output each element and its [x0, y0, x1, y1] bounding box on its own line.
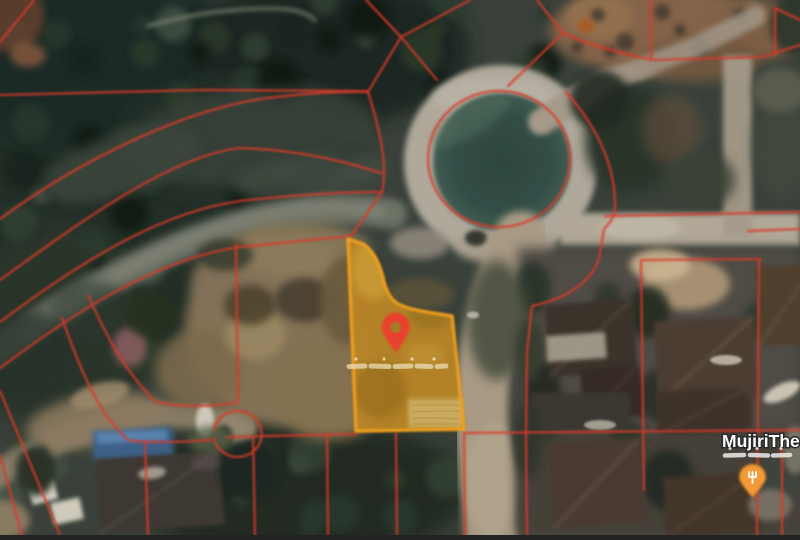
- svg-text:MujiriThe: MujiriThe: [722, 431, 800, 451]
